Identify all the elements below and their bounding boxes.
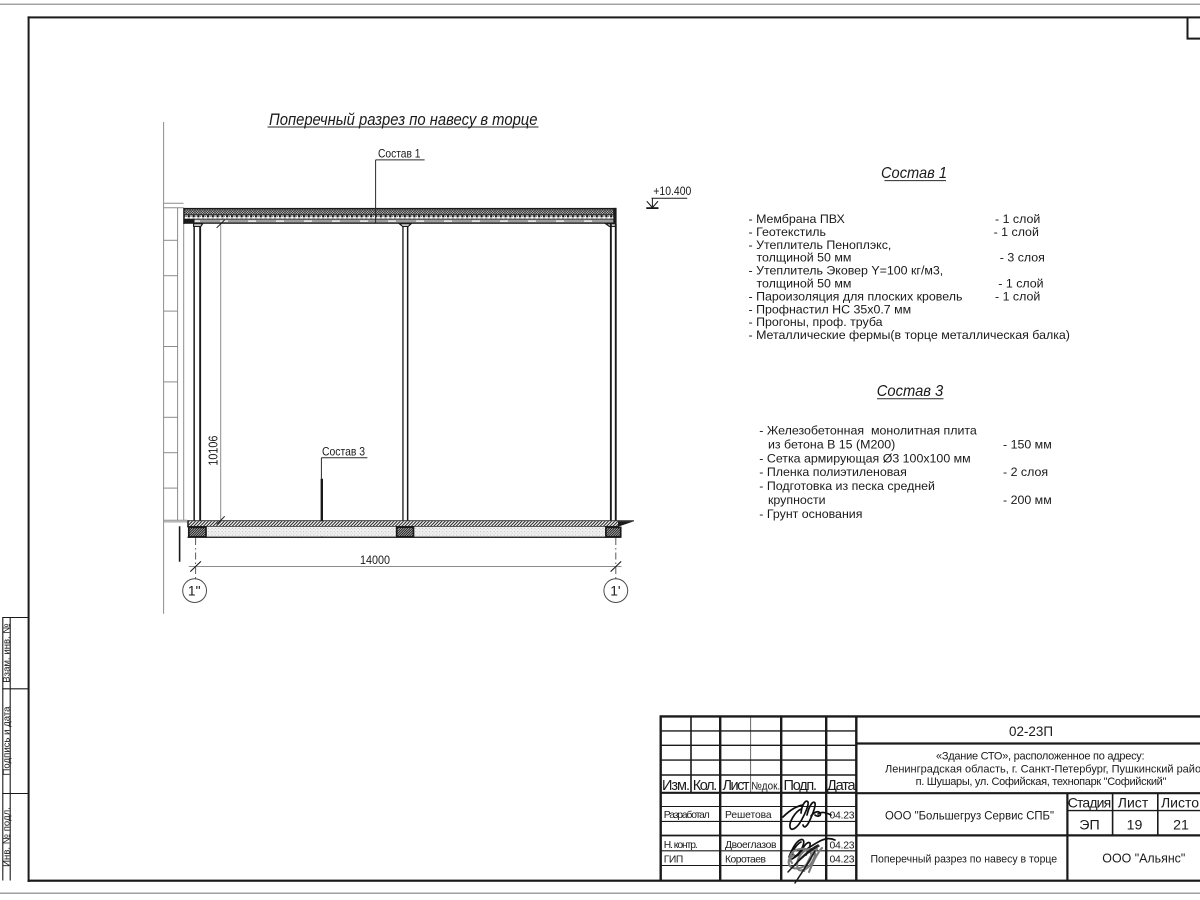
svg-text:Двоеглазов: Двоеглазов	[725, 840, 777, 851]
svg-text:Листов: Листов	[1161, 795, 1200, 811]
svg-text:толщиной 50 мм: толщиной 50 мм	[757, 251, 852, 265]
svg-text:- 1 слой: - 1 слой	[995, 289, 1040, 303]
svg-text:Ленинградская область, г. Санк: Ленинградская область, г. Санкт-Петербур…	[885, 763, 1200, 775]
svg-text:1': 1'	[610, 584, 620, 599]
svg-text:02-23П: 02-23П	[1009, 724, 1053, 740]
svg-text:Лист: Лист	[723, 778, 750, 794]
svg-text:ГИП: ГИП	[664, 854, 684, 865]
svg-text:Н. контр.: Н. контр.	[664, 840, 698, 851]
svg-text:№док.: №док.	[751, 780, 780, 792]
svg-text:- Сетка армирующая Ø3 100х100: - Сетка армирующая Ø3 100х100 мм	[759, 451, 970, 465]
svg-text:«Здание СТО», расположенное по: «Здание СТО», расположенное по адресу:	[936, 751, 1145, 763]
svg-text:ООО "Альянс": ООО "Альянс"	[1102, 851, 1185, 866]
svg-text:04.23: 04.23	[830, 811, 855, 822]
svg-text:- Железобетонная монолитная п: - Железобетонная монолитная плита	[759, 424, 977, 438]
svg-text:Состав 1: Состав 1	[881, 165, 947, 182]
svg-text:10106: 10106	[207, 436, 221, 466]
svg-text:+10.400: +10.400	[653, 184, 691, 198]
svg-text:- Металлические фермы(в торце: - Металлические фермы(в торце металличес…	[749, 328, 1070, 342]
svg-text:ООО "Большегруз Сервис СПБ": ООО "Большегруз Сервис СПБ"	[885, 809, 1054, 822]
svg-text:Кол.: Кол.	[693, 778, 718, 794]
svg-text:Решетова: Решетова	[725, 810, 772, 821]
svg-text:Стадия: Стадия	[1068, 795, 1112, 811]
svg-text:Поперечный разрез по навесу в: Поперечный разрез по навесу в торце	[269, 110, 538, 129]
svg-text:Изм.: Изм.	[662, 778, 690, 794]
svg-text:из бетона В 15 (М200): из бетона В 15 (М200)	[768, 437, 895, 451]
svg-text:- Пароизоляция для плоских кро: - Пароизоляция для плоских кровель	[749, 289, 963, 303]
svg-text:- Прогоны, проф. труба: - Прогоны, проф. труба	[749, 315, 883, 329]
svg-text:04.23: 04.23	[830, 855, 855, 866]
svg-text:крупности: крупности	[768, 493, 826, 507]
svg-text:Поперечный разрез по навесу в: Поперечный разрез по навесу в торце	[870, 854, 1057, 866]
svg-text:- 1 слой: - 1 слой	[995, 212, 1040, 226]
svg-text:19: 19	[1127, 818, 1143, 834]
svg-text:- 2 слоя: - 2 слоя	[1003, 465, 1048, 479]
svg-text:- 1 слой: - 1 слой	[998, 277, 1043, 291]
svg-text:- 200 мм: - 200 мм	[1003, 493, 1052, 507]
svg-text:толщиной 50 мм: толщиной 50 мм	[757, 277, 852, 291]
svg-text:14000: 14000	[360, 554, 390, 567]
svg-text:- 1 слой: - 1 слой	[994, 225, 1039, 239]
svg-text:- Геотекстиль: - Геотекстиль	[749, 225, 826, 239]
svg-text:1": 1"	[188, 584, 201, 599]
svg-text:Инв. № подл.: Инв. № подл.	[1, 807, 12, 867]
svg-text:Коротаев: Коротаев	[725, 854, 767, 865]
svg-text:Состав 1: Состав 1	[378, 146, 421, 160]
svg-text:- Утеплитель Пеноплэкс,: - Утеплитель Пеноплэкс,	[749, 238, 892, 252]
svg-text:ЭП: ЭП	[1079, 818, 1099, 834]
svg-text:- 150 мм: - 150 мм	[1003, 437, 1052, 451]
svg-text:04.23: 04.23	[830, 840, 855, 851]
svg-text:Подпись и дата: Подпись и дата	[1, 706, 12, 776]
svg-text:- Пленка полиэтиленовая: - Пленка полиэтиленовая	[759, 465, 907, 479]
svg-text:Лист: Лист	[1118, 795, 1149, 811]
svg-text:Взам. инв. №: Взам. инв. №	[1, 623, 12, 682]
svg-text:21: 21	[1173, 818, 1189, 834]
svg-text:Состав 3: Состав 3	[877, 383, 944, 400]
svg-text:- Профнастил НС 35х0.7 мм: - Профнастил НС 35х0.7 мм	[749, 302, 912, 316]
svg-text:Разработал: Разработал	[664, 809, 710, 821]
svg-text:Подп.: Подп.	[784, 778, 818, 794]
svg-text:- 3 слоя: - 3 слоя	[1000, 251, 1045, 265]
svg-text:Дата: Дата	[827, 778, 856, 794]
svg-text:- Подготовка из песка средней: - Подготовка из песка средней	[759, 479, 935, 493]
svg-text:- Утеплитель Эковер Y=100 кг/м: - Утеплитель Эковер Y=100 кг/м3,	[749, 264, 944, 278]
svg-text:- Мембрана ПВХ: - Мембрана ПВХ	[749, 212, 845, 226]
svg-text:- Грунт основания: - Грунт основания	[759, 507, 862, 521]
svg-text:Состав 3: Состав 3	[322, 445, 365, 459]
svg-text:п. Шушары, ул. Софийская, техн: п. Шушары, ул. Софийская, технопарк "Соф…	[916, 776, 1167, 788]
